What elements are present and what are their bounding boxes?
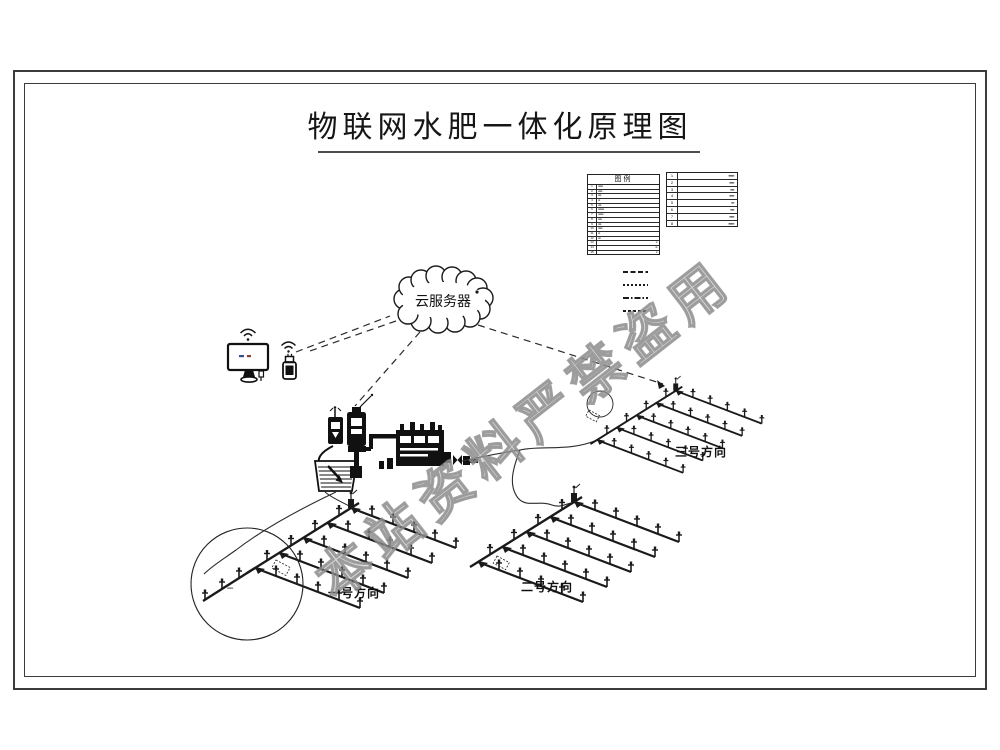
legend-row-num: 3 xyxy=(588,194,597,198)
legend-row-num: 6 xyxy=(588,208,597,212)
sheet-border-inner xyxy=(24,83,976,677)
legend-row-num: 11 xyxy=(588,232,597,236)
legend-row-num: 1 xyxy=(667,173,678,179)
legend-row-text: ▪▪▪ xyxy=(678,200,737,206)
legend-row: 8▪▪▪▪▪▪ xyxy=(667,221,737,227)
title-underline xyxy=(318,151,700,153)
legend-row-num: 8 xyxy=(667,221,678,227)
page-title: 物联网水肥一体化原理图 xyxy=(0,102,1000,146)
legend-row-text: ▪▪▪ xyxy=(597,232,659,236)
legend-row-text: ▪▪▪▪ xyxy=(678,207,737,213)
legend-row-num: 5 xyxy=(588,204,597,208)
legend-row: 5▪▪▪ xyxy=(667,200,737,207)
legend-row: 2▪▪▪▪▪ xyxy=(667,180,737,187)
legend-row-text: ▪▪▪▪ xyxy=(678,187,737,193)
cloud-server-label: 云服务器 xyxy=(398,291,488,311)
legend-row-text: ▪▪▪▪▪▪ xyxy=(678,221,737,227)
legend-table-secondary: 1▪▪▪▪▪▪ 2▪▪▪▪▪ 3▪▪▪▪ 4▪▪▪▪▪ 5▪▪▪ 6▪▪▪▪ 7… xyxy=(666,172,738,227)
legend-row-num: 12 xyxy=(588,237,597,241)
legend-row-num: 1 xyxy=(588,185,597,189)
legend-row: 3▪▪▪▪ xyxy=(667,187,737,194)
legend-row-text: ▪▪▪▪▪ xyxy=(678,193,737,199)
legend-row-text: ▪▪ xyxy=(597,241,659,245)
legend-row-num: 15 xyxy=(588,251,597,255)
legend-row: 7▪▪▪▪▪ xyxy=(667,214,737,221)
legend-row-num: 14 xyxy=(588,246,597,250)
legend-row-num: 3 xyxy=(667,187,678,193)
legend-row-text: ▪▪▪▪▪ xyxy=(678,214,737,220)
legend-row-text: ▪▪▪▪▪ xyxy=(597,194,659,198)
legend-header: 图例 xyxy=(588,175,659,185)
legend-row: 4▪▪▪▪▪ xyxy=(667,193,737,200)
legend-row-num: 9 xyxy=(588,223,597,227)
legend-row-text: ▪▪▪▪▪ xyxy=(597,204,659,208)
legend-row-num: 2 xyxy=(588,190,597,194)
legend-row: 15▪▪ xyxy=(588,251,659,255)
legend-row-text: ▪▪▪▪ xyxy=(597,237,659,241)
legend-table-main: 图例 1▪▪▪▪▪▪▪▪ 2▪▪▪▪▪▪▪ 3▪▪▪▪▪ 4▪▪▪ 5▪▪▪▪▪… xyxy=(587,174,660,255)
legend-row-text: ▪▪▪ xyxy=(597,199,659,203)
field2-label: 二号方向 xyxy=(521,578,573,595)
legend-row-text: ▪▪▪▪▪▪▪▪▪▪ xyxy=(597,208,659,212)
legend-row-text: ▪▪▪▪▪▪▪ xyxy=(597,227,659,231)
legend-row-num: 8 xyxy=(588,218,597,222)
legend-row-text: ▪▪▪▪▪▪▪ xyxy=(597,190,659,194)
legend-row-text: ▪▪▪▪▪▪ xyxy=(597,218,659,222)
legend-row-text: ▪▪▪▪▪ xyxy=(678,180,737,186)
legend-row-text: ▪▪▪▪▪▪▪▪ xyxy=(597,185,659,189)
legend-row-num: 4 xyxy=(667,193,678,199)
legend-row-num: 5 xyxy=(667,200,678,206)
legend-row-num: 7 xyxy=(588,213,597,217)
legend-row-text: ▪▪▪▪▪ xyxy=(597,223,659,227)
legend-row-num: 2 xyxy=(667,180,678,186)
legend-row-num: 6 xyxy=(667,207,678,213)
legend-row-text: ▪▪ xyxy=(597,251,659,255)
legend-row-text: ▪▪▪▪▪▪ xyxy=(678,173,737,179)
legend-row-num: 10 xyxy=(588,227,597,231)
legend-row-num: 7 xyxy=(667,214,678,220)
legend-row-num: 13 xyxy=(588,241,597,245)
drawing-sheet: 物联网水肥一体化原理图 图例 1▪▪▪▪▪▪▪▪ 2▪▪▪▪▪▪▪ 3▪▪▪▪▪… xyxy=(0,0,1000,750)
legend-row: 6▪▪▪▪ xyxy=(667,207,737,214)
callout-note: ▪▪▪▪▪▪▪▪▪▪ xyxy=(227,586,233,590)
field1-label: 一号方向 xyxy=(328,584,380,601)
legend-row-text: ▪▪▪ xyxy=(597,246,659,250)
legend-row: 1▪▪▪▪▪▪ xyxy=(667,173,737,180)
legend-row-num: 4 xyxy=(588,199,597,203)
legend-row-text: ▪▪▪▪▪▪▪▪▪ xyxy=(597,213,659,217)
field3-label: 三号方向 xyxy=(675,443,727,460)
